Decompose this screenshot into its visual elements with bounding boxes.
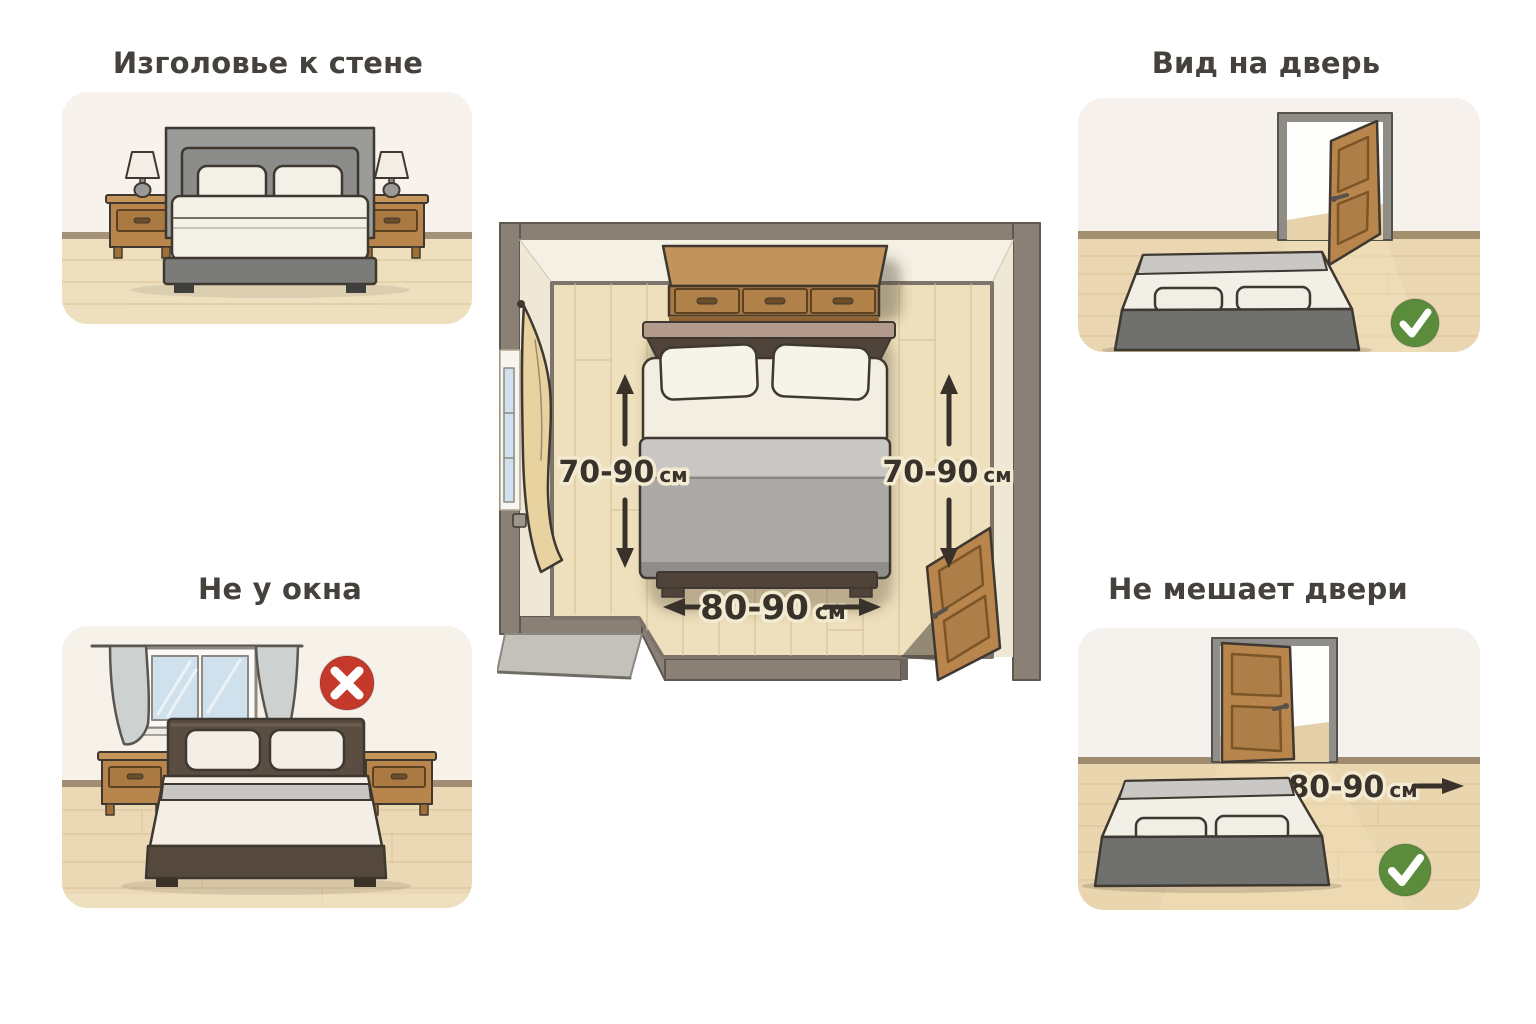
not-by-window-illustration [62,626,472,908]
pillow [186,730,260,770]
cross-icon [320,656,374,710]
panel-not-by-window [62,626,472,908]
footboard [657,572,877,588]
pillow [660,344,758,400]
headboard-to-wall-illustration [62,92,472,324]
bed-top-view [640,322,895,597]
pillow [772,344,870,400]
check-icon [1391,299,1439,347]
headboard [643,322,895,338]
bedroom-floor-plan: 70-90см 70-90см 80-90см [497,210,1042,700]
bed-foot-view [1115,252,1359,350]
panel-title-headboard-to-wall: Изголовье к стене [113,48,423,80]
floor-plan-illustration: 70-90см 70-90см 80-90см [497,210,1042,700]
dresser [663,246,887,321]
check-icon [1379,844,1431,896]
bed-foot-view [1095,778,1329,886]
window [500,350,520,510]
panel-not-blocking-door: 80-90см [1078,628,1480,910]
blanket [640,438,890,578]
pillow [1237,287,1310,311]
panel-headboard-to-wall [62,92,472,324]
panel-view-of-door [1078,98,1480,352]
open-door [1222,643,1294,762]
bed-front-view [146,719,386,887]
panel-title-view-of-door: Вид на дверь [1152,48,1381,80]
infographic-canvas: { "page": { "type": "infographic", "lang… [0,0,1536,1024]
entry-step [497,634,642,678]
pillow [270,730,344,770]
not-blocking-door-illustration: 80-90см [1078,628,1480,910]
panel-title-not-blocking-door: Не мешает двери [1108,574,1408,606]
bed-front-view [164,128,376,293]
view-of-door-illustration [1078,98,1480,352]
panel-title-not-by-window: Не у окна [198,574,362,606]
